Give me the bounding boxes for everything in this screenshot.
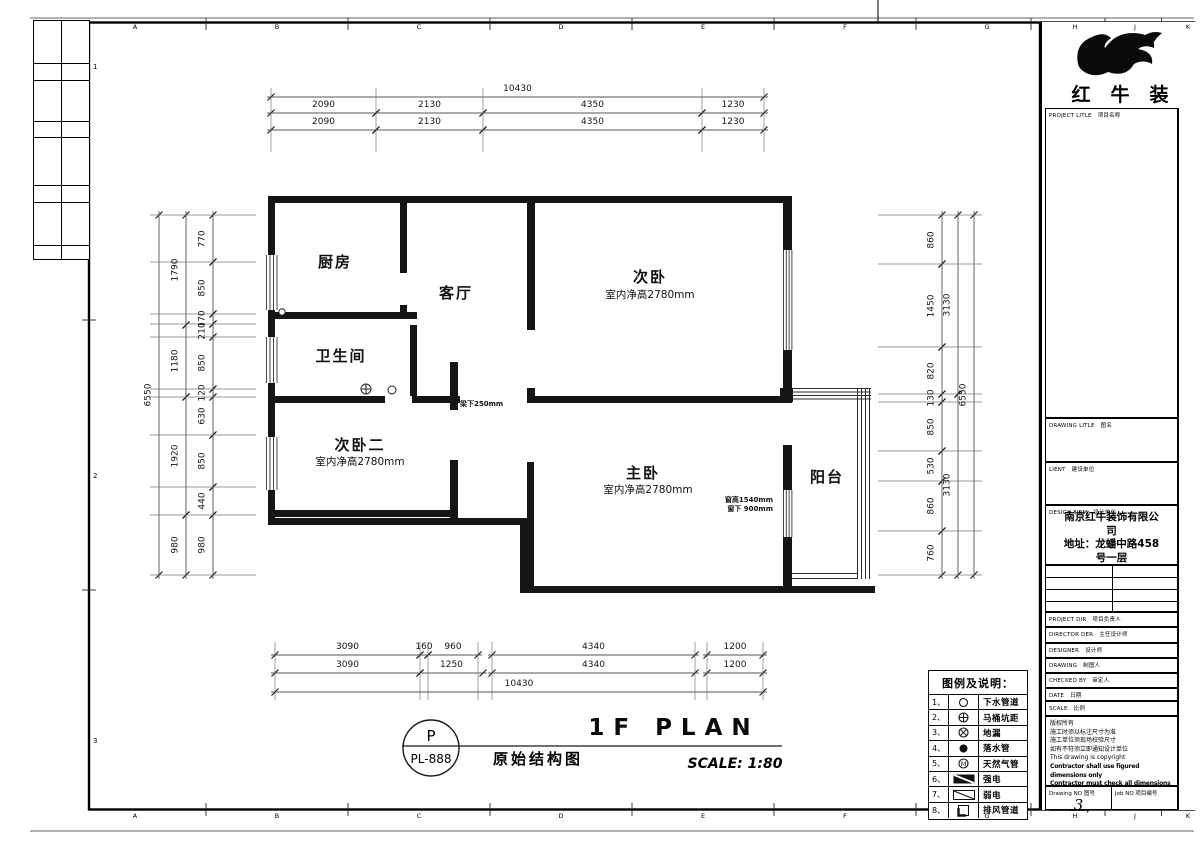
dimension-label: 210 <box>199 322 208 339</box>
grid-letter-top: J <box>1134 24 1136 31</box>
room-label-balcony: 阳台 <box>810 470 844 485</box>
dimension-label: 2130 <box>418 118 441 127</box>
dimension-label: 4340 <box>582 643 605 652</box>
drawing-no-label-cn: 图号 <box>1084 791 1095 797</box>
tb-drawing-title-cn: 图名 <box>1101 423 1112 429</box>
legend-item-label: 马桶坑距 <box>979 712 1027 724</box>
scale-text: SCALE: 1:80 <box>688 757 783 771</box>
dimension-label: 2090 <box>312 118 335 127</box>
legend-item-label: 下水管道 <box>979 696 1027 708</box>
legend-row: 5、M天然气管 <box>929 757 1027 772</box>
legend-item-label: 地漏 <box>979 727 1027 739</box>
tb-drawing-title-en: DRAWING LITLE <box>1049 423 1095 429</box>
dimension-label: 3090 <box>336 661 359 670</box>
dimension-label: 850 <box>199 452 208 469</box>
grid-letter-bottom: A <box>133 813 137 820</box>
revision-strip <box>33 20 90 260</box>
dimension-label: 770 <box>199 230 208 247</box>
legend-item-number: 7、 <box>929 787 949 801</box>
grid-letter-bottom: B <box>275 813 279 820</box>
grid-number-left: 3 <box>93 738 97 745</box>
dimension-label: 1230 <box>722 101 745 110</box>
dimension-label: 960 <box>444 643 461 652</box>
grid-letter-bottom: F <box>843 813 847 820</box>
window-sill-note: 窗下 900mm <box>727 506 773 513</box>
dimension-label: 4340 <box>582 661 605 670</box>
grid-letter-bottom: K <box>1186 813 1190 820</box>
svg-text:M: M <box>961 760 967 768</box>
room-label-kitchen: 厨房 <box>318 255 352 270</box>
circle-x-icon <box>949 726 979 740</box>
tb-field-row: SCALE比例 <box>1045 701 1178 716</box>
tb-field-label-cn: 设计师 <box>1085 648 1102 654</box>
grid-letter-top: B <box>275 24 279 31</box>
dimension-label: 2090 <box>312 101 335 110</box>
grid-letter-top: K <box>1186 24 1190 31</box>
tb-field-label-en: DATE <box>1049 693 1064 699</box>
room-label-bathroom: 卫生间 <box>315 349 366 364</box>
stamp-number: PL-888 <box>411 753 452 765</box>
tb-field-row: DESIGNER设计师 <box>1045 643 1178 658</box>
legend-header: 图例及说明： <box>929 671 1027 695</box>
tb-field-row: DATE日期 <box>1045 688 1178 701</box>
tb-field-row: CHECKED BY审定人 <box>1045 673 1178 688</box>
legend-item-number: 3、 <box>929 726 949 740</box>
dimension-label: 3130 <box>944 293 953 316</box>
dimension-label: 850 <box>199 279 208 296</box>
tb-field-label-en: DRAWING <box>1049 663 1077 669</box>
dimension-label: 3090 <box>336 643 359 652</box>
tb-field-label-en: DIRECTOR DER <box>1049 632 1093 638</box>
dimension-label: 1920 <box>172 445 181 468</box>
grid-letter-bottom: D <box>558 813 563 820</box>
drawing-sheet: { "sheet": { "grid_letters": ["A","B","C… <box>0 0 1200 844</box>
job-no-label-en: Job NO <box>1115 791 1134 797</box>
dimension-label: 850 <box>199 354 208 371</box>
tb-field-row: PROJECT DIR项目负责人 <box>1045 612 1178 627</box>
dimension-label: 630 <box>199 407 208 424</box>
title-block: 红牛装饰 PROJECT LITLE项目名称 DRAWING LITLE图名 L… <box>1040 22 1196 810</box>
brand-bull-logo-icon <box>1070 26 1180 80</box>
room-label-master-bedroom: 主卧 <box>626 466 660 481</box>
dimension-label: 530 <box>928 457 937 474</box>
legend-row: 4、落水管 <box>929 741 1027 756</box>
company-address: 地址：龙蟠中路458号一层 <box>1063 538 1161 565</box>
grid-letter-top: H <box>1073 24 1078 31</box>
copyright-note-line: 施工时须以标注尺寸为准 <box>1050 729 1177 738</box>
legend-item-label: 落水管 <box>979 742 1027 754</box>
legend-item-number: 6、 <box>929 772 949 786</box>
tb-job-no-box: Job NO 项目编号 <box>1111 786 1178 810</box>
dimension-label: 120 <box>199 384 208 401</box>
stamp-letter: P <box>426 729 435 744</box>
legend-row: 2、马桶坑距 <box>929 710 1027 725</box>
legend-item-number: 2、 <box>929 710 949 724</box>
dimension-label: 130 <box>928 389 937 406</box>
tb-field-label-cn: 项目负责人 <box>1092 617 1121 623</box>
tb-field-label-cn: 主任设计师 <box>1099 632 1128 638</box>
copyright-note-line: 如有不符须立即通知设计单位 <box>1050 746 1177 755</box>
beam-note: 梁下250mm <box>460 401 503 408</box>
copyright-note-line: This drawing is copyright <box>1050 754 1177 763</box>
circle-filled-icon <box>949 741 979 755</box>
dimension-label: 10430 <box>503 85 532 94</box>
room-label-bedroom-3: 次卧二 <box>334 438 385 453</box>
legend-item-number: 8、 <box>929 803 949 818</box>
dimension-label: 850 <box>928 418 937 435</box>
dimension-label: 1180 <box>172 350 181 373</box>
dimension-label: 6550 <box>960 384 969 407</box>
grid-letter-bottom: C <box>417 813 422 820</box>
grid-letter-top: D <box>558 24 563 31</box>
dimension-label: 820 <box>928 362 937 379</box>
tb-client-box: LIENT建设单位 <box>1045 462 1178 505</box>
dimension-label: 980 <box>172 536 181 553</box>
circle-m-icon: M <box>949 757 979 771</box>
tb-drawing-title-box: DRAWING LITLE图名 <box>1045 418 1178 462</box>
tb-field-label-en: DESIGNER <box>1049 648 1079 654</box>
dimension-label: 980 <box>199 536 208 553</box>
tb-project-title-box: PROJECT LITLE项目名称 <box>1045 108 1178 418</box>
company-info: 南京红牛装饰有限公司 地址：龙蟠中路458号一层 <box>1063 511 1161 565</box>
plan-title: 1F PLAN <box>588 717 759 740</box>
grid-letter-bottom: J <box>1134 813 1136 820</box>
tb-field-label-cn: 日期 <box>1070 693 1081 699</box>
legend-item-number: 4、 <box>929 741 949 755</box>
tb-field-label-en: PROJECT DIR <box>1049 617 1086 623</box>
room-label-bedroom-2: 次卧 <box>633 270 667 285</box>
dimension-label: 860 <box>928 231 937 248</box>
grid-letter-top: A <box>133 24 137 31</box>
grid-letter-top: E <box>701 24 705 31</box>
legend-item-label: 强电 <box>979 773 1027 785</box>
dimension-label: 1230 <box>722 118 745 127</box>
tb-client-en: LIENT <box>1049 467 1066 473</box>
circle-outline-icon <box>949 695 979 709</box>
rect-diagonal-icon <box>949 787 979 801</box>
tb-project-title-en: PROJECT LITLE <box>1049 113 1092 119</box>
dimension-label: 2130 <box>418 101 441 110</box>
grid-letter-top: G <box>984 24 989 31</box>
grid-letter-top: C <box>417 24 422 31</box>
dimension-label: 1450 <box>928 294 937 317</box>
room-label-living-room: 客厅 <box>439 286 473 301</box>
grid-letter-bottom: H <box>1073 813 1078 820</box>
grid-letter-bottom: G <box>984 813 989 820</box>
window-height-note: 窗高1540mm <box>725 497 773 504</box>
circle-cross-icon <box>949 710 979 724</box>
rect-filled-diagonal-icon <box>949 772 979 786</box>
tb-field-row: DIRECTOR DER主任设计师 <box>1045 627 1178 643</box>
legend-item-number: 5、 <box>929 757 949 771</box>
drawing-no-value: 3 <box>1046 796 1111 814</box>
job-no-label-cn: 项目编号 <box>1135 791 1157 797</box>
dimension-label: 160 <box>415 643 432 652</box>
tb-design-firm-box: DESIGN FIRM设计单位 南京红牛装饰有限公司 地址：龙蟠中路458号一层 <box>1045 505 1178 565</box>
dimension-label: 1790 <box>172 259 181 282</box>
copyright-note-line: Contractor shall use figured dimensions … <box>1050 763 1177 780</box>
tb-blank-grid <box>1045 565 1178 612</box>
grid-letter-bottom: E <box>701 813 705 820</box>
company-name: 南京红牛装饰有限公司 <box>1063 511 1161 538</box>
tb-drawing-no-box: Drawing NO 图号 3 <box>1045 786 1112 810</box>
legend-item-label: 弱电 <box>979 789 1027 801</box>
grid-letter-top: F <box>843 24 847 31</box>
tb-field-label-cn: 审定人 <box>1092 678 1109 684</box>
legend-row: 7、弱电 <box>929 787 1027 802</box>
dimension-label: 1200 <box>724 643 747 652</box>
dimension-label: 440 <box>199 492 208 509</box>
tb-field-label-en: SCALE <box>1049 706 1068 712</box>
tb-field-label-cn: 比例 <box>1074 706 1085 712</box>
dimension-label: 10430 <box>505 680 534 689</box>
dimension-label: 4350 <box>581 101 604 110</box>
dimension-label: 3130 <box>944 473 953 496</box>
room-note-master-bedroom: 室内净高2780mm <box>603 485 692 496</box>
legend-row: 6、强电 <box>929 772 1027 787</box>
dimension-label: 860 <box>928 497 937 514</box>
dimension-label: 1250 <box>440 661 463 670</box>
room-note-bedroom-2: 室内净高2780mm <box>605 290 694 301</box>
legend-box: 图例及说明： 1、下水管道2、马桶坑距3、地漏4、落水管5、M天然气管6、强电7… <box>928 670 1028 820</box>
legend-row: 3、地漏 <box>929 726 1027 741</box>
dimension-label: 1200 <box>724 661 747 670</box>
dimension-label: 4350 <box>581 118 604 127</box>
legend-row: 8、排风管道 <box>929 803 1027 818</box>
grid-number-left: 2 <box>93 473 97 480</box>
dimension-label: 760 <box>928 544 937 561</box>
drawing-name: 原始结构图 <box>493 752 583 767</box>
legend-item-number: 1、 <box>929 695 949 709</box>
tb-field-label-en: CHECKED BY <box>1049 678 1086 684</box>
legend-item-label: 天然气管 <box>979 758 1027 770</box>
grid-number-left: 1 <box>93 64 97 71</box>
tb-client-cn: 建设单位 <box>1072 467 1095 473</box>
room-note-bedroom-3: 室内净高2780mm <box>315 457 404 468</box>
legend-row: 1、下水管道 <box>929 695 1027 710</box>
tb-field-row: DRAWING制图人 <box>1045 658 1178 673</box>
copyright-note-line: 版权所有 <box>1050 720 1177 729</box>
tb-project-title-cn: 项目名称 <box>1098 113 1121 119</box>
square-corner-icon <box>949 803 979 818</box>
tb-notes-box: 版权所有施工时须以标注尺寸为准施工单位须现场校验尺寸如有不符须立即通知设计单位T… <box>1045 716 1178 786</box>
tb-field-label-cn: 制图人 <box>1083 663 1100 669</box>
dimension-label: 6550 <box>145 384 154 407</box>
copyright-note-line: 施工单位须现场校验尺寸 <box>1050 737 1177 746</box>
